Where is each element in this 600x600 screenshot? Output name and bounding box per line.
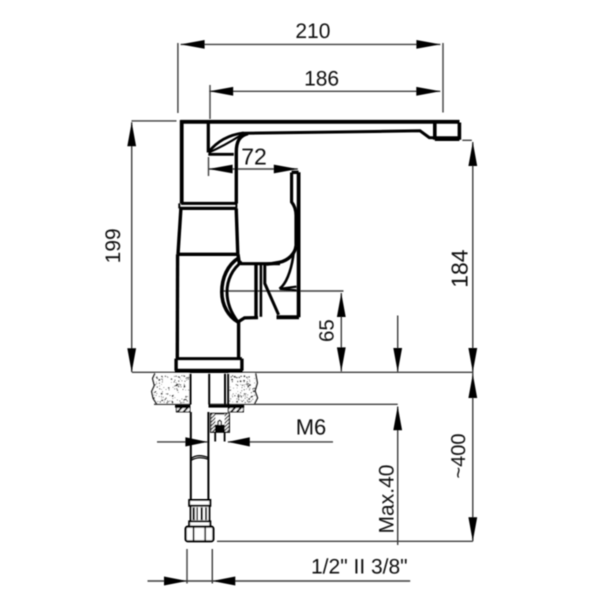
svg-text:72: 72 (241, 144, 267, 170)
svg-text:184: 184 (446, 249, 472, 288)
svg-text:65: 65 (316, 319, 339, 342)
svg-text:M6: M6 (296, 415, 327, 440)
svg-text:199: 199 (102, 228, 125, 263)
svg-text:1/2" II 3/8": 1/2" II 3/8" (311, 556, 408, 579)
svg-text:186: 186 (304, 68, 339, 91)
svg-text:~400: ~400 (448, 433, 470, 478)
svg-text:Max.40: Max.40 (376, 465, 399, 534)
svg-text:210: 210 (295, 20, 330, 43)
